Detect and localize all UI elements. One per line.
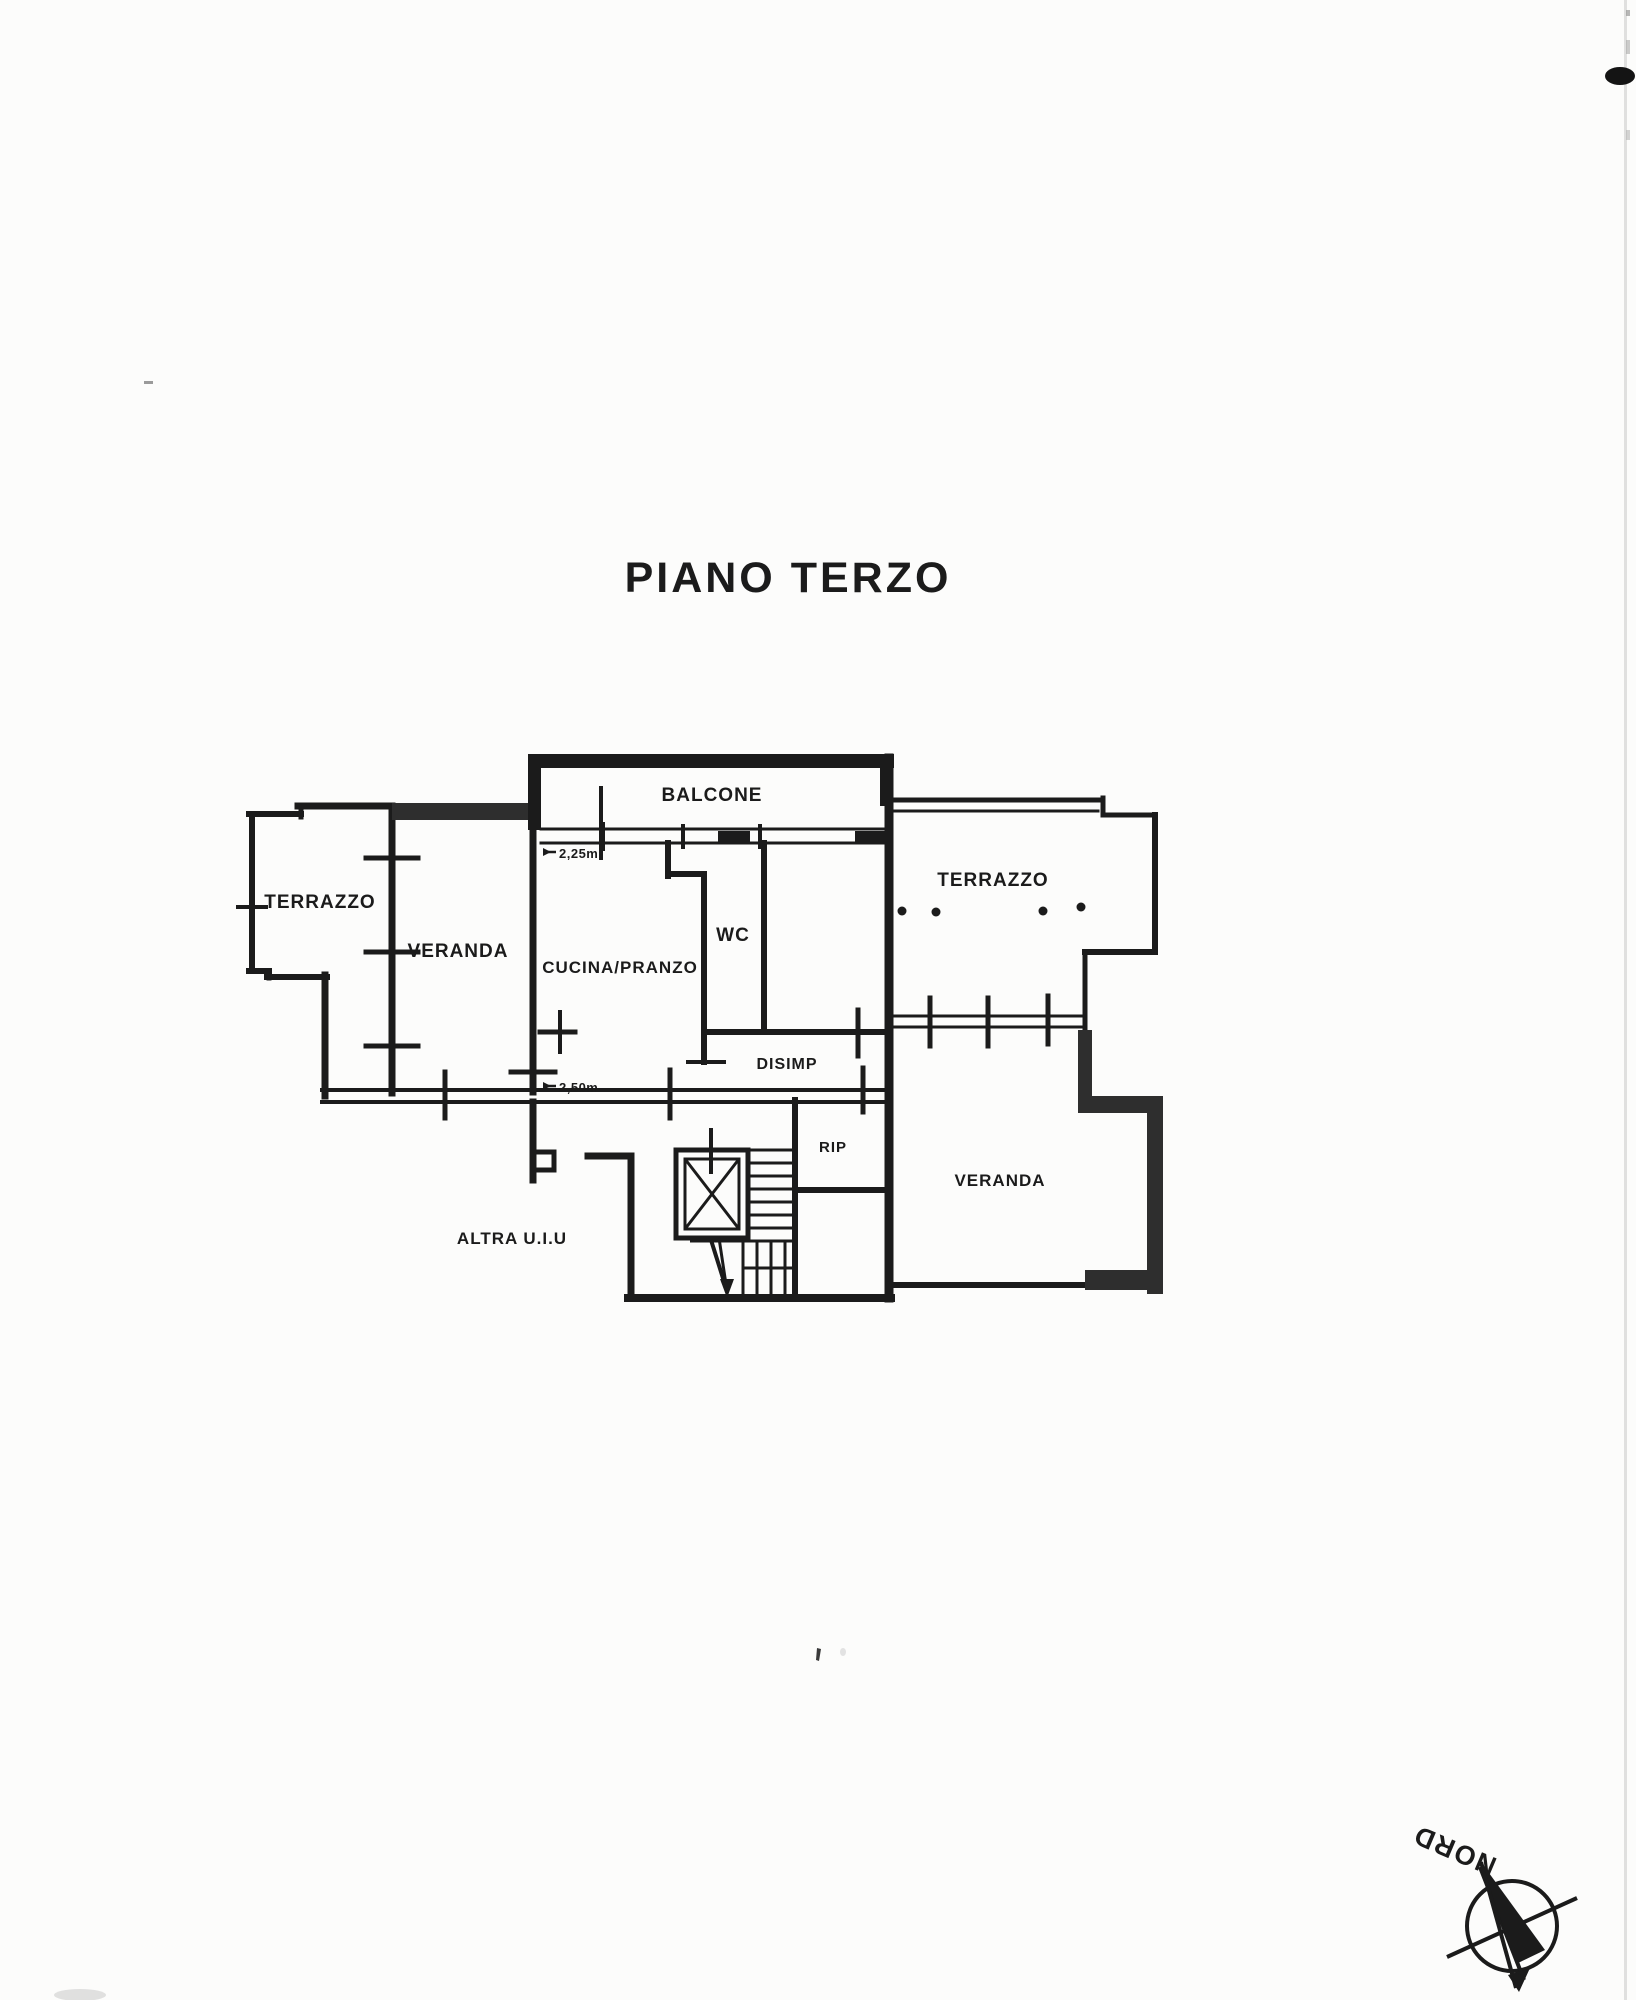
room-label-rip: RIP [819, 1139, 847, 1156]
height-annotation-lower-text: 2,50m [559, 1080, 598, 1095]
room-label-disimp: DISIMP [756, 1056, 817, 1073]
room-label-altra-uiu: ALTRA U.I.U [457, 1229, 567, 1248]
height-annotation-lower: 2,50m [543, 1080, 598, 1095]
scanned-floor-plan-page: PIANO TERZO [0, 0, 1636, 2000]
room-label-balcone: BALCONE [662, 785, 763, 806]
walls-outline [249, 758, 1155, 1298]
terrazzo-dots [898, 903, 1086, 917]
page-title: PIANO TERZO [625, 554, 952, 602]
room-label-terrazzo-right: TERRAZZO [937, 870, 1048, 891]
floor-plan-drawing: PIANO TERZO [0, 0, 1636, 2000]
room-label-terrazzo-left: TERRAZZO [264, 892, 375, 913]
room-label-veranda-left: VERANDA [408, 941, 509, 962]
stair-direction-arrow [711, 1238, 734, 1298]
window-door-ticks [238, 788, 1048, 1172]
compass: NORD [1408, 1819, 1577, 1992]
north-label: NORD [1408, 1819, 1500, 1881]
height-annotation-upper-text: 2,25m [559, 846, 598, 861]
stairs [690, 1150, 793, 1296]
room-label-wc: WC [716, 925, 750, 946]
room-label-veranda-right: VERANDA [954, 1171, 1045, 1190]
height-annotation-upper: 2,25m [543, 846, 598, 861]
room-label-cucina: CUCINA/PRANZO [542, 958, 698, 977]
arrow-icon [543, 848, 551, 856]
scan-artifacts [54, 0, 1635, 2000]
